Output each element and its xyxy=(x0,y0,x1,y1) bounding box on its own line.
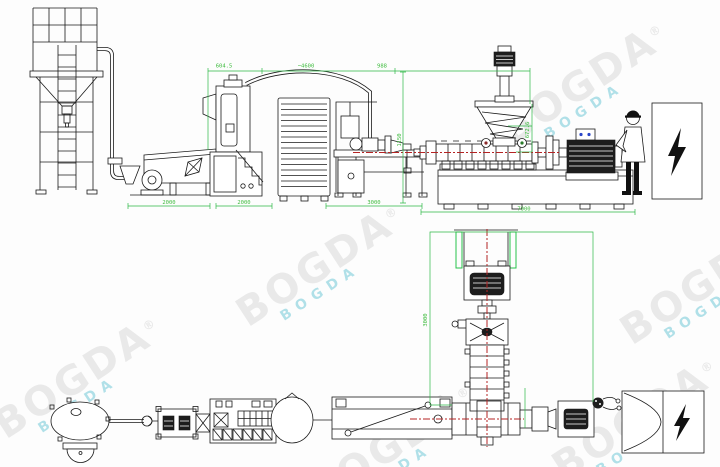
electric-cabinet-plan xyxy=(622,391,704,453)
dim-label-bench-width: 3000 xyxy=(367,200,380,206)
dim-label-crusher-width: 2000 xyxy=(237,200,250,206)
cad-canvas: 604.5 ~4600 988 1150 672.6 2000 2000 300… xyxy=(0,0,720,467)
cooling-rack-side-view xyxy=(278,98,330,201)
operator-figure-plan xyxy=(593,397,622,410)
haul-off-line-plan-view xyxy=(332,397,594,439)
dim-label-top-main: ~4600 xyxy=(298,64,315,70)
dimension-annotations: 604.5 ~4600 988 1150 672.6 2000 2000 300… xyxy=(128,64,635,429)
extruder-side-view xyxy=(414,46,633,209)
dim-label-extruder-total: 7000 xyxy=(517,207,530,213)
electric-cabinet-side xyxy=(652,103,702,199)
winder-console-plan-view xyxy=(156,399,276,443)
main-motor xyxy=(566,129,622,180)
dim-label-top-right: 988 xyxy=(377,64,387,70)
water-tank-plan-view xyxy=(271,393,313,443)
dim-label-extruder-height: 1150 xyxy=(397,133,403,146)
mixer-tank-plan-view xyxy=(50,398,160,463)
compactor-side-view xyxy=(203,75,263,196)
dim-label-plan-frame: 3000 xyxy=(423,313,429,326)
machine-layout-drawing: BOGDA® BOGDA BOGDA® BOGDA BOGDA® BOGDA B… xyxy=(0,0,720,467)
dim-label-mixer-width: 2000 xyxy=(162,200,175,206)
dim-label-top-left: 604.5 xyxy=(216,64,233,70)
mixer-side-view xyxy=(108,149,218,195)
storage-silo-side-view xyxy=(30,8,103,194)
dim-label-feeder-height: 672.6 xyxy=(525,122,531,139)
